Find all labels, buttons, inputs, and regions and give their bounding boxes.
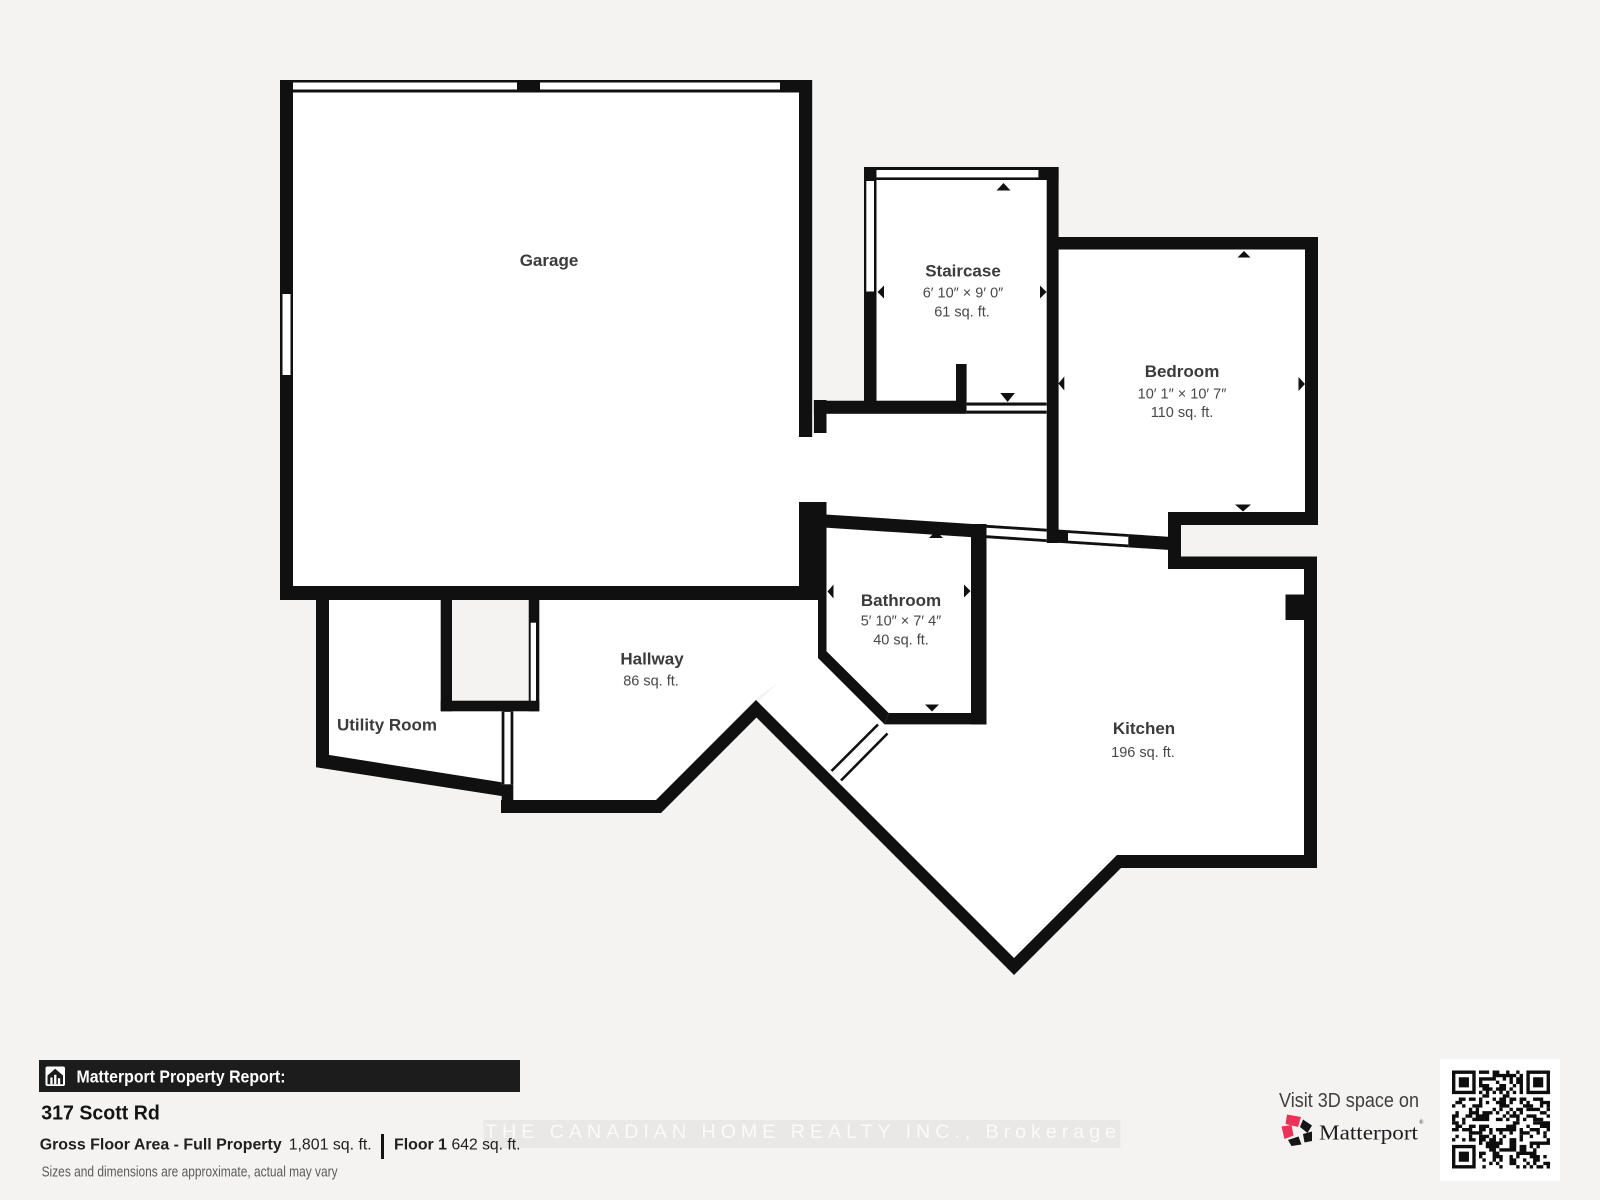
svg-text:Garage: Garage: [520, 251, 579, 270]
svg-text:40 sq. ft.: 40 sq. ft.: [873, 633, 929, 649]
svg-text:Bedroom: Bedroom: [1145, 362, 1220, 381]
svg-text:THE CANADIAN HOME REALTY INC.,: THE CANADIAN HOME REALTY INC., Brokerage: [485, 1121, 1116, 1143]
svg-text:5′ 10″ × 7′ 4″: 5′ 10″ × 7′ 4″: [861, 614, 942, 630]
svg-text:317 Scott Rd: 317 Scott Rd: [41, 1103, 160, 1125]
svg-text:61 sq. ft.: 61 sq. ft.: [934, 305, 990, 321]
svg-text:Matterport Property Report:: Matterport Property Report:: [77, 1067, 286, 1087]
svg-text:10′ 1″ × 10′ 7″: 10′ 1″ × 10′ 7″: [1138, 387, 1227, 403]
svg-text:Hallway: Hallway: [620, 650, 684, 669]
svg-text:1,801 sq. ft.: 1,801 sq. ft.: [289, 1137, 372, 1154]
svg-text:Utility Room: Utility Room: [337, 716, 437, 735]
svg-text:®: ®: [1419, 1119, 1424, 1126]
svg-text:196 sq. ft.: 196 sq. ft.: [1111, 745, 1175, 761]
svg-text:86 sq. ft.: 86 sq. ft.: [623, 674, 679, 690]
svg-text:Staircase: Staircase: [925, 262, 1001, 281]
svg-text:110 sq. ft.: 110 sq. ft.: [1151, 405, 1214, 421]
svg-text:Matterport: Matterport: [1319, 1121, 1418, 1145]
svg-text:Visit 3D space on: Visit 3D space on: [1279, 1090, 1419, 1112]
svg-text:Floor 1: Floor 1: [394, 1137, 447, 1154]
svg-text:Sizes and dimensions are appro: Sizes and dimensions are approximate, ac…: [42, 1164, 338, 1181]
svg-text:6′ 10″ × 9′ 0″: 6′ 10″ × 9′ 0″: [923, 286, 1004, 302]
svg-text:Bathroom: Bathroom: [861, 591, 941, 610]
svg-text:642 sq. ft.: 642 sq. ft.: [452, 1137, 521, 1154]
svg-text:Gross Floor Area - Full Proper: Gross Floor Area - Full Property: [40, 1137, 282, 1154]
svg-text:Kitchen: Kitchen: [1113, 719, 1175, 738]
